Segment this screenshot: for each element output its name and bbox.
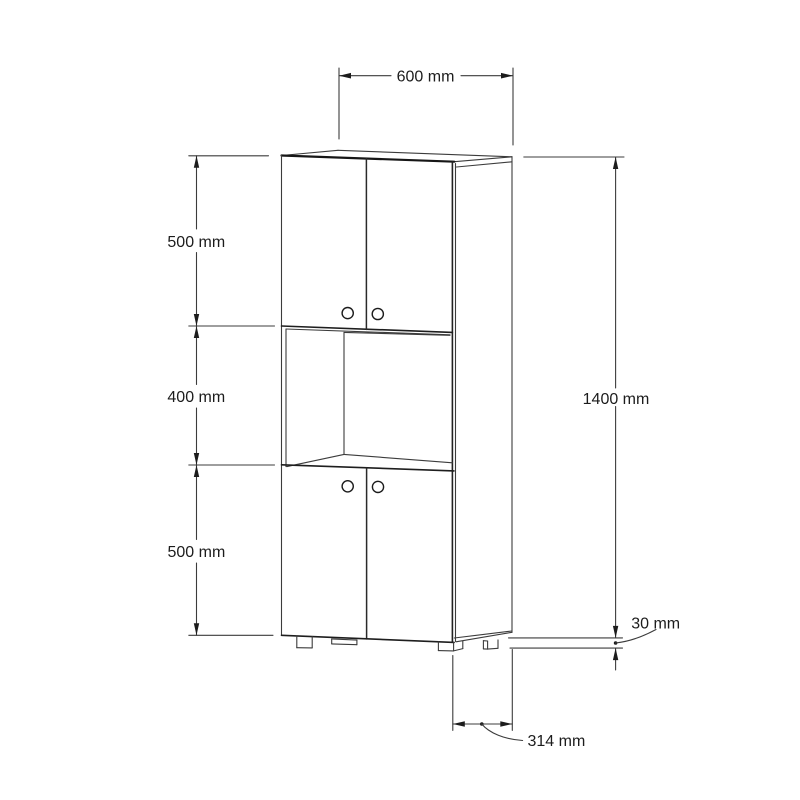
svg-text:600 mm: 600 mm	[397, 69, 455, 86]
svg-text:500 mm: 500 mm	[168, 544, 226, 561]
svg-text:400 mm: 400 mm	[167, 389, 225, 406]
svg-text:1400 mm: 1400 mm	[583, 391, 650, 408]
svg-text:314 mm: 314 mm	[528, 733, 586, 750]
svg-text:500 mm: 500 mm	[167, 234, 225, 251]
svg-text:30 mm: 30 mm	[631, 615, 680, 632]
